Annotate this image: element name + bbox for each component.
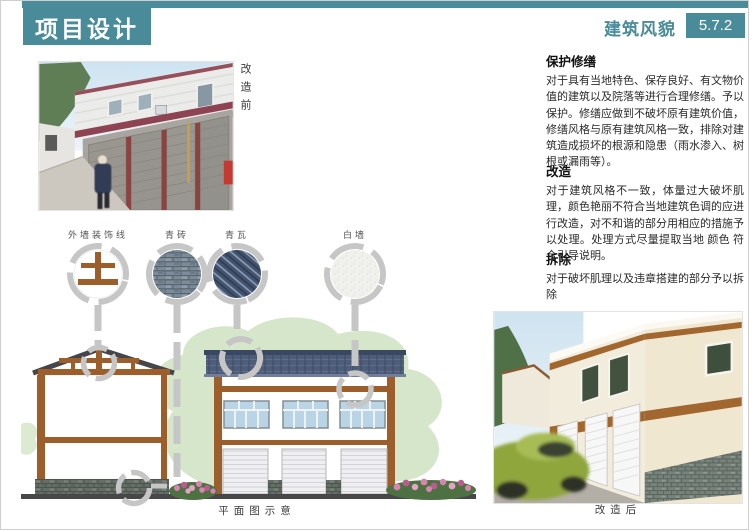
header-accent-bar (22, 1, 749, 8)
grey-brick-swatch (138, 239, 217, 313)
roller-doors (223, 449, 387, 494)
page-title: 项目设计 (23, 8, 151, 45)
after-render-illustration (494, 312, 742, 503)
tile-roof (206, 353, 404, 376)
document-page: 项目设计 建筑风貌 5.7.2 (0, 0, 749, 530)
section-number-badge: 5.7.2 (686, 13, 745, 38)
red-bin (224, 161, 233, 185)
elevation-diagram (21, 239, 491, 509)
after-renovation-render (493, 311, 743, 504)
section-label: 建筑风貌 (604, 15, 676, 40)
white-wall-swatch (318, 239, 392, 311)
guideline-block-repair: 保护修缮 对于具有当地特色、保存良好、有文物价值的建筑以及院落等进行合理修缮。予… (546, 51, 744, 171)
guideline-heading: 拆除 (546, 249, 744, 268)
guideline-heading: 保护修缮 (546, 51, 744, 70)
guideline-body: 对于破坏肌理以及违章搭建的部分予以拆除 (546, 271, 744, 304)
elevation-caption: 平面图示意 (197, 503, 317, 518)
before-renovation-photo (38, 61, 234, 211)
guideline-body: 对于具有当地特色、保存良好、有文物价值的建筑以及院落等进行合理修缮。予以保护。修… (546, 73, 744, 171)
grey-tile-swatch (201, 239, 273, 310)
right-building-elevation (204, 350, 406, 494)
left-building-elevation (33, 349, 174, 494)
before-photo-illustration (39, 62, 233, 210)
before-photo-caption: 改造前 (237, 63, 253, 117)
after-photo-caption: 改造后 (493, 502, 743, 517)
guideline-heading: 改造 (546, 161, 744, 180)
decorative-line-swatch (64, 240, 133, 309)
guideline-block-demolish: 拆除 对于破坏肌理以及违章搭建的部分予以拆除 (546, 249, 744, 304)
